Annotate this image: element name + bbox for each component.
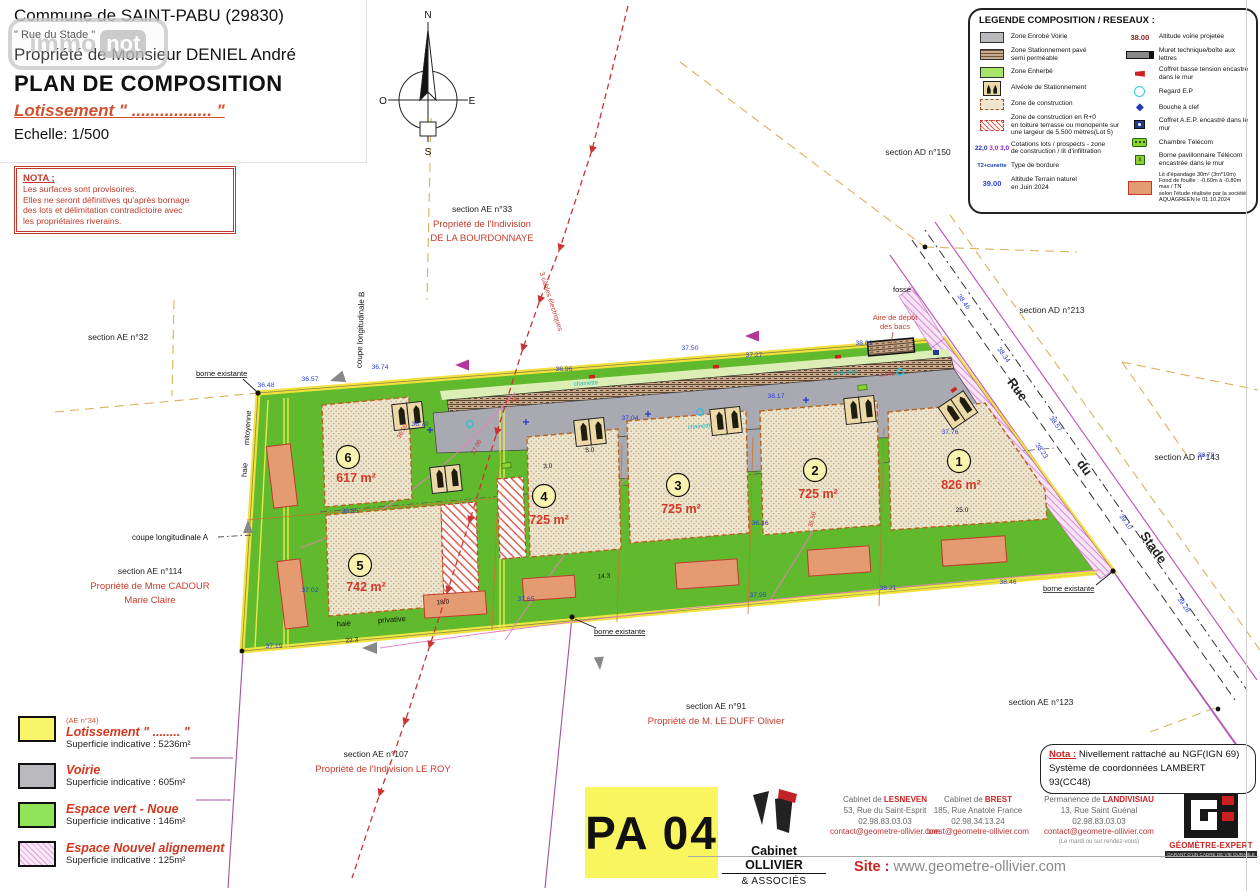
ngf-label: Nota : xyxy=(1049,749,1076,760)
section-ae114-label: section AE n°114 xyxy=(118,566,182,576)
espace-vert-swatch xyxy=(18,802,56,828)
legend-item-label: Bouche à clef xyxy=(1159,99,1249,115)
voirie-swatch xyxy=(18,763,56,789)
lot-3-number[interactable]: 3 xyxy=(674,478,681,493)
compass-s-label: S xyxy=(425,147,432,158)
prop-bourdonnaye-2: DE LA BOURDONNAYE xyxy=(430,233,533,244)
lot-2-area: 725 m² xyxy=(798,487,838,501)
area-superficie: Superficie indicative : 125m² xyxy=(66,855,224,866)
area-superficie: Superficie indicative : 5236m² xyxy=(66,739,191,750)
altitude-label: 37.76 xyxy=(941,429,958,436)
dim-label: 25.0 xyxy=(956,507,969,514)
plan-reference: PA 04 xyxy=(585,806,718,860)
site-url[interactable]: www.geometre-ollivier.com xyxy=(894,859,1066,875)
prop-bourdonnaye-1: Propriété de l'Indivision xyxy=(433,219,531,230)
altitude-label: 38.21 xyxy=(879,585,896,592)
area-legend: (AE n°34) Lotissement " ........ " Super… xyxy=(18,716,224,867)
office-address: 13, Rue Saint Guénal xyxy=(1036,806,1162,817)
office-phone[interactable]: 02.98.83.03.03 xyxy=(1036,817,1162,828)
red-dim: -1.5% xyxy=(877,370,894,378)
coupe-a-label: coupe longitudinale A xyxy=(132,533,209,542)
cables-label: 3 câbles électriques xyxy=(538,271,564,332)
swatch-enrobe xyxy=(977,29,1007,45)
area-legend-row-alignement: Espace Nouvel alignement Superficie indi… xyxy=(18,841,224,867)
compass-e-label: E xyxy=(469,96,476,107)
legend-box: LEGENDE COMPOSITION / RESEAUX : Zone Enr… xyxy=(968,8,1258,214)
red-dim: -2% xyxy=(508,397,520,405)
nota-ngf-box: Nota : Nivellement rattaché au NGF(IGN 6… xyxy=(1040,744,1256,794)
legend-item-label: Altitude Terrain naturel en Juin 2024 xyxy=(1011,174,1121,193)
area-note: (AE n°34) xyxy=(66,716,191,725)
lot-6-number[interactable]: 6 xyxy=(344,450,351,465)
bouche-a-clef-icon xyxy=(1125,99,1155,115)
bin-depot-pad xyxy=(867,338,914,356)
borne-telecom-icon: x xyxy=(1125,150,1155,169)
legend-item-label: Zone de construction xyxy=(1011,96,1121,112)
geometre-expert-block: GÉOMÈTRE-EXPERT GARANT D'UN CADRE DE VIE… xyxy=(1165,792,1257,858)
lot-4-number[interactable]: 4 xyxy=(540,489,548,504)
legend-item-label: Chambre Télécom xyxy=(1159,134,1249,150)
legend-item-label: Borne pavillonnaire Télécom encastrée da… xyxy=(1159,150,1249,169)
altitude-tn-sample: 39.00 xyxy=(977,174,1007,193)
watermark: immo not xyxy=(8,18,168,70)
cabinet-ollivier-logo xyxy=(745,789,803,839)
altitude-label: 39.10 xyxy=(1117,513,1133,531)
watermark-text-1: immo xyxy=(30,30,97,59)
legend-item-label: Zone Stationnement pavé semi perméable xyxy=(1011,45,1121,64)
lot-2-number[interactable]: 2 xyxy=(811,463,818,478)
altitude-label: 38.46 xyxy=(955,293,971,311)
section-ad150-label: section AD n°150 xyxy=(885,147,951,157)
lot-4-area: 725 m² xyxy=(529,513,569,527)
legend-item-label: Zone Enrobé Voirie xyxy=(1011,29,1121,45)
lotissement-subtitle: Lotissement " ................. " xyxy=(14,101,414,121)
mitoyenne-label: mitoyenne xyxy=(242,410,253,445)
lot-5-area: 742 m² xyxy=(346,580,386,594)
section-ae33-label: section AE n°33 xyxy=(452,204,512,214)
legend-item-label: Altitude voirie projetée xyxy=(1159,29,1249,45)
altitude-label: 38.78 xyxy=(1197,452,1214,459)
legend-item-label: Lit d'épandage 30m² (3m*10m) Fond de fou… xyxy=(1159,170,1249,206)
area-legend-row-voirie: Voirie Superficie indicative : 605m² xyxy=(18,763,224,789)
section-ae107-label: section AE n°107 xyxy=(344,749,409,759)
prop-cadour-2: Marie Claire xyxy=(124,595,175,606)
red-annotations: Aire de dépôt des bacs 3 câbles électriq… xyxy=(538,271,919,344)
altitude-label: 36.96 xyxy=(555,366,572,373)
office-note: (Le mardi ou sur rendez-vous) xyxy=(1036,838,1162,846)
cotation-lot: 22,0 xyxy=(975,145,988,152)
cotation-infiltration: 3,0 xyxy=(1000,145,1009,152)
lot-6-area: 617 m² xyxy=(336,471,376,485)
nota-body: Les surfaces sont provisoires. Elles ne … xyxy=(23,184,227,227)
altitude-label: 36.85 xyxy=(341,508,358,515)
altitude-label: 37.27 xyxy=(745,352,762,359)
legend-item-label: Type de bordure xyxy=(1011,158,1121,174)
alignement-swatch xyxy=(18,841,56,867)
altitude-voirie-sample: 38.00 xyxy=(1125,29,1155,45)
altitude-label: 37.65 xyxy=(517,596,534,603)
plan-reference-box: PA 04 xyxy=(585,787,718,878)
section-ad213-label: section AD n°213 xyxy=(1019,305,1085,315)
area-name: Voirie xyxy=(66,763,185,777)
muret-icon xyxy=(1125,45,1155,64)
borne-label-s: borne existante xyxy=(594,627,645,636)
section-ae91-label: section AE n°91 xyxy=(686,701,746,711)
legend-item-label: Coffret basse tension encastré dans le m… xyxy=(1159,64,1249,83)
lot-1-area: 826 m² xyxy=(941,478,981,492)
office-brest: Cabinet de BREST 185, Rue Anatole France… xyxy=(922,795,1034,838)
legend-item-label: Zone Enherbé xyxy=(1011,64,1121,80)
stade-label: Stade xyxy=(1137,529,1170,566)
altitude-label: 38.23 xyxy=(1033,442,1049,460)
office-email[interactable]: brest@geometre-ollivier.com xyxy=(922,827,1034,838)
altitude-label: 36.70 xyxy=(411,421,428,428)
swatch-construction xyxy=(977,96,1007,112)
lot-3-area: 725 m² xyxy=(661,502,701,516)
prop-cadour-1: Propriété de Mme CADOUR xyxy=(90,581,209,592)
firm-subname: & ASSOCIÉS xyxy=(722,876,826,887)
swatch-pave xyxy=(977,45,1007,64)
section-ae32-label: section AE n°32 xyxy=(88,332,148,342)
cotation-sample: 22,0 3,0 3,0 xyxy=(977,139,1007,158)
office-name: LESNEVEN xyxy=(884,795,927,804)
borne-label-se: borne existante xyxy=(1043,584,1094,593)
area-superficie: Superficie indicative : 605m² xyxy=(66,777,185,788)
altitude-label: 38.17 xyxy=(767,393,784,400)
bordure-sample: T2+cunette xyxy=(977,158,1007,174)
ngf-line-1: Nivellement rattaché au NGF(IGN 69) xyxy=(1076,749,1239,760)
titleblock-divider xyxy=(688,856,1258,857)
ngf-line-2: Système de coordonnées LAMBERT 93(CC48) xyxy=(1049,762,1247,790)
aire-depot-label-1: Aire de dépôt xyxy=(873,313,919,322)
altitude-label: 37.50 xyxy=(681,345,698,352)
cotation-prospect: 3,0 xyxy=(989,145,998,152)
altitude-label: 38.57 xyxy=(1047,415,1063,433)
office-phone[interactable]: 02.98.34.13.24 xyxy=(922,817,1034,828)
coupe-b-label: coupe longitudinale B xyxy=(355,292,367,369)
altitude-label: 37.19 xyxy=(265,643,282,650)
altitude-label: 37.04 xyxy=(621,415,638,422)
page-edge-line xyxy=(1246,0,1247,891)
altitude-label: 36.57 xyxy=(301,376,318,383)
office-prefix: Permanence de xyxy=(1044,795,1103,804)
office-address: 185, Rue Anatole France xyxy=(922,806,1034,817)
site-line: Site : www.geometre-ollivier.com xyxy=(700,859,1220,875)
legend-item-label: Muret technique/boîte aux lettres xyxy=(1159,45,1249,64)
office-name: BREST xyxy=(985,795,1012,804)
legend-item-label: Alvéole de Stationnement xyxy=(1011,80,1121,96)
dim-label: 22.3 xyxy=(345,637,358,645)
legend-item-label: Cotations lots / prospects - zone de con… xyxy=(1011,139,1121,158)
dim-label: 14.3 xyxy=(597,573,610,581)
legend-item-label: Coffret A.E.P. encastré dans le mur xyxy=(1159,115,1249,134)
altitude-label: 38.46 xyxy=(999,579,1016,586)
area-legend-row-lotissement: (AE n°34) Lotissement " ........ " Super… xyxy=(18,716,224,750)
nota-title: NOTA ; xyxy=(23,173,227,184)
area-superficie: Superficie indicative : 146m² xyxy=(66,816,185,827)
site-label: Site : xyxy=(854,859,889,875)
dim-label: 18.0 xyxy=(436,599,449,607)
prop-leroy: Propriété de l'Indivision LE ROY xyxy=(315,764,451,775)
altitude-label: 37.95 xyxy=(749,592,766,599)
swatch-epandage xyxy=(1125,170,1155,206)
dim-label: 3.0 xyxy=(543,463,553,471)
office-prefix: Cabinet de xyxy=(944,795,985,804)
watermark-text-2: not xyxy=(100,30,146,58)
regard-ep-icon xyxy=(1125,83,1155,99)
lotissement-swatch xyxy=(18,716,56,742)
compass-n-label: N xyxy=(424,10,431,21)
altitude-label: 39.28 xyxy=(1175,596,1191,614)
plan-title: PLAN DE COMPOSITION xyxy=(14,71,414,97)
chambre-telecom-icon xyxy=(1125,134,1155,150)
office-email[interactable]: contact@geometre-ollivier.com xyxy=(1036,827,1162,838)
legend-item-label: Regard E.P xyxy=(1159,83,1249,99)
aire-depot-label-2: des bacs xyxy=(880,322,910,331)
nota-box: NOTA ; Les surfaces sont provisoires. El… xyxy=(14,166,236,234)
altitude-label: 38.09 xyxy=(855,340,872,347)
lot-1-number[interactable]: 1 xyxy=(955,454,962,469)
geometre-expert-name: GÉOMÈTRE-EXPERT xyxy=(1165,841,1257,850)
altitude-label: 36.48 xyxy=(257,382,274,389)
swatch-enherbe xyxy=(977,64,1007,80)
borne-label-nw: borne existante xyxy=(196,369,247,378)
office-landivisiau: Permanence de LANDIVISIAU 13, Rue Saint … xyxy=(1036,795,1162,846)
legend-title: LEGENDE COMPOSITION / RESEAUX : xyxy=(979,15,1249,26)
office-name: LANDIVISIAU xyxy=(1103,795,1154,804)
haie-bottom-label: haie xyxy=(336,619,351,629)
legend-item-label: Zone de construction en R+0 en toiture t… xyxy=(1011,112,1121,139)
area-name: Lotissement " ........ " xyxy=(66,725,191,739)
coffret-bt-icon xyxy=(1125,64,1155,83)
geometre-expert-logo xyxy=(1184,792,1238,838)
swatch-r0 xyxy=(977,112,1007,139)
alveole-icon xyxy=(977,80,1007,96)
dim-label: 5.0 xyxy=(585,447,595,455)
altitude-label: 36.74 xyxy=(371,364,388,371)
rue-label: Rue xyxy=(1004,375,1031,404)
altitude-label: 36.36 xyxy=(751,520,768,527)
area-name: Espace Nouvel alignement xyxy=(66,841,224,855)
prop-leduff: Propriété de M. LE DUFF Olivier xyxy=(648,716,785,727)
office-prefix: Cabinet de xyxy=(843,795,884,804)
scale-label: Echelle: 1/500 xyxy=(14,126,414,143)
area-name: Espace vert - Noue xyxy=(66,802,185,816)
haie-left-label: haie xyxy=(240,462,250,477)
altitude-label: 37.02 xyxy=(301,587,318,594)
coffret-aep-icon xyxy=(1125,115,1155,134)
area-legend-row-espace-vert: Espace vert - Noue Superficie indicative… xyxy=(18,802,224,828)
lot-5-number[interactable]: 5 xyxy=(356,558,363,573)
fosse-label: fossé xyxy=(893,285,911,294)
section-ae123-label: section AE n°123 xyxy=(1009,697,1074,707)
